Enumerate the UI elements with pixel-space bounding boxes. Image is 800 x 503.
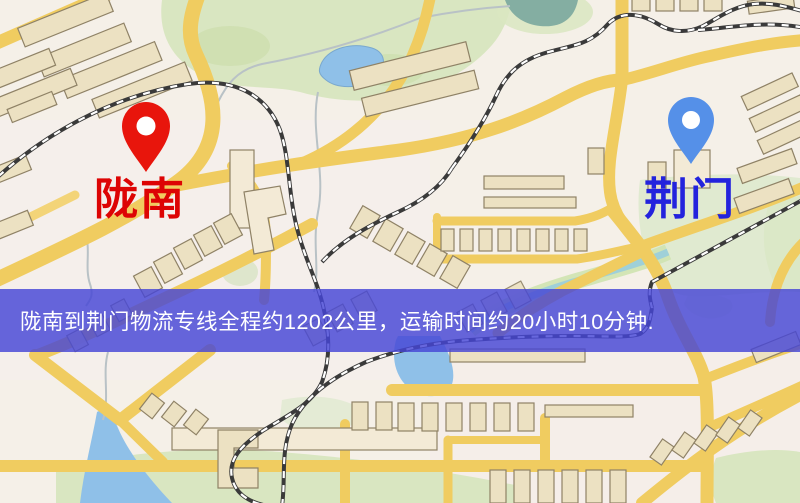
origin-city-label: 陇南	[94, 178, 186, 222]
pin-hole	[137, 117, 156, 136]
pin-hole	[682, 111, 700, 129]
destination-city-label: 荆门	[644, 178, 736, 222]
route-info-banner: 陇南到荆门物流专线全程约1202公里，运输时间约20小时10分钟.	[0, 289, 800, 352]
map-canvas: 陇南 荆门 陇南到荆门物流专线全程约1202公里，运输时间约20小时10分钟.	[0, 0, 800, 503]
origin-pin-shape	[122, 102, 170, 172]
origin-pin-marker[interactable]	[120, 100, 172, 172]
pin-icon	[120, 100, 172, 172]
route-info-text: 陇南到荆门物流专线全程约1202公里，运输时间约20小时10分钟.	[20, 305, 654, 336]
pin-icon	[666, 96, 716, 164]
destination-pin-marker[interactable]	[666, 96, 718, 168]
basemap	[0, 0, 800, 503]
destination-pin-shape	[668, 97, 714, 164]
